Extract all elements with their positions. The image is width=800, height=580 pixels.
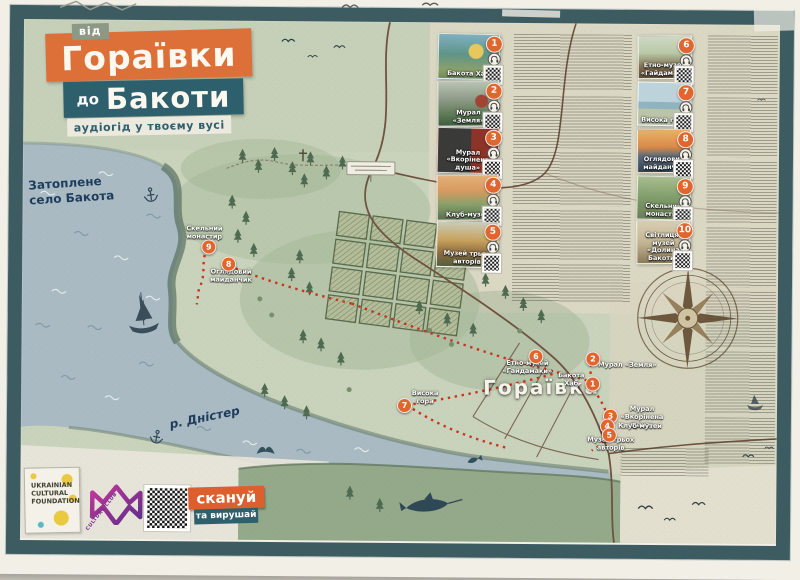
title-prefix: від: [72, 23, 109, 40]
map-marker-9: 9: [201, 239, 216, 254]
tagline: аудіогід у твоєму вусі: [67, 115, 231, 136]
qr-code: [673, 251, 692, 270]
qr-code-main: [144, 485, 190, 531]
poi-number-badge: 6: [678, 37, 695, 54]
poi-number-badge: 7: [677, 84, 694, 101]
poi-number-badge: 1: [486, 36, 503, 53]
marker-label-4: Клуб-музей: [615, 422, 665, 431]
guide-text-block: [512, 264, 630, 303]
guide-text-block: [705, 351, 775, 414]
audio-guide-icon: [487, 194, 500, 207]
marker-label-6: Етно-музей «Гайдамаки»: [499, 359, 555, 376]
poi-number-badge: 5: [484, 224, 501, 241]
scan-button: скануй: [188, 486, 265, 510]
map-marker-1: 1: [585, 376, 600, 391]
title-secondary: Бакоти: [106, 80, 231, 116]
guide-text-block: [705, 291, 775, 348]
guide-text-block: [513, 96, 631, 149]
guide-text-block: [512, 210, 630, 261]
poi-number-badge: 2: [485, 83, 502, 100]
qr-code: [482, 254, 501, 273]
guide-text-block: [705, 417, 775, 464]
guide-text-block: [706, 227, 776, 288]
map-marker-8: 8: [221, 257, 236, 272]
ucf-logo-line: FOUNDATION: [31, 497, 80, 506]
title-secondary-prefix: до: [76, 90, 99, 108]
flooded-village-label: Затоплене село Бакота: [28, 172, 130, 208]
map-marker-6: 6: [528, 349, 543, 364]
guide-text-block: [513, 152, 631, 207]
title-block-secondary: до Бакоти: [63, 78, 244, 118]
marker-label-9: Скельний монастир: [176, 224, 232, 241]
poster-photo: від Гораївки до Бакоти аудіогід у твоєму…: [0, 0, 800, 580]
audio-guide-icon: [486, 241, 499, 254]
guide-text-block: [514, 34, 632, 91]
marker-label-7: Висока гора: [407, 389, 443, 406]
guide-text-block: [707, 35, 777, 94]
audio-guide-icon: [487, 100, 500, 113]
map-marker-5: 5: [602, 428, 617, 443]
audio-guide-icon: [487, 147, 500, 160]
culture-club-logo: CULTURE CLUB: [84, 475, 148, 536]
scan-button-sub: та вирушай: [194, 508, 258, 525]
marker-label-2: Мурал «Земля»: [597, 361, 657, 370]
poi-number-badge: 9: [677, 178, 694, 195]
audio-guide-icon: [488, 53, 501, 66]
title-main: Гораївки: [61, 33, 237, 82]
ucf-logo: UKRAINIAN CULTURAL FOUNDATION: [24, 467, 81, 534]
map-marker-7: 7: [397, 398, 412, 413]
poi-number-badge: 3: [485, 130, 502, 147]
map-marker-2: 2: [585, 351, 600, 366]
guide-text-block: [707, 97, 777, 158]
poi-number-badge: 10: [676, 222, 693, 239]
guide-text-block: [706, 161, 776, 224]
poi-number-badge: 4: [485, 177, 502, 194]
poi-number-badge: 8: [677, 131, 694, 148]
